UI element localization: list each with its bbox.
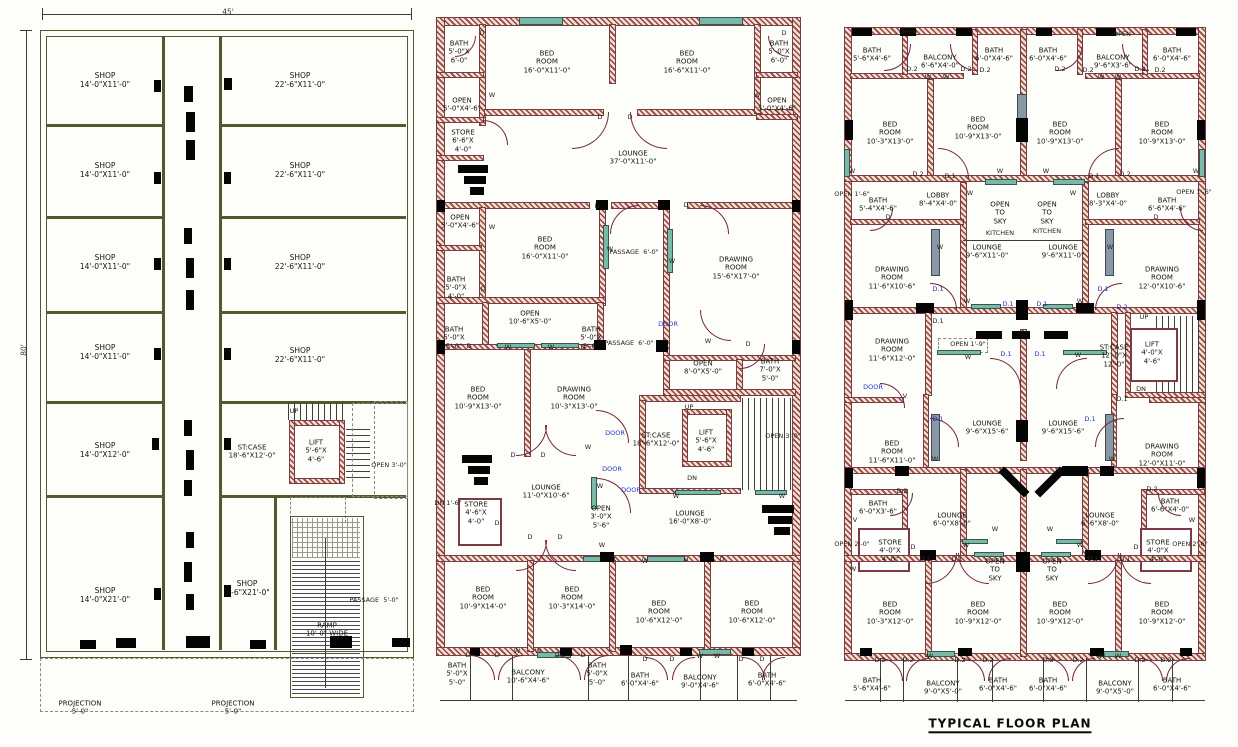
w-label: W <box>943 74 949 82</box>
d-label: D <box>781 30 786 38</box>
column <box>437 200 445 212</box>
bed-label: BED ROOM 10'-3"X13'-0" <box>867 120 914 145</box>
w-label: W <box>585 444 591 452</box>
window <box>972 305 1000 308</box>
column <box>1012 331 1030 339</box>
wall <box>222 216 406 219</box>
w-label: W <box>964 298 970 306</box>
bath-label: BATH 5'-0"X 6'-0" <box>768 39 789 64</box>
column <box>1062 466 1088 476</box>
column <box>462 455 492 463</box>
w-label: W <box>1115 653 1121 661</box>
column <box>1016 552 1030 572</box>
up-label: UP <box>685 404 694 412</box>
d-label: D <box>540 452 545 460</box>
door-arc <box>1056 358 1087 389</box>
d.2-label: D.2 <box>1042 657 1053 665</box>
column <box>184 562 192 582</box>
door-label: DOOR <box>863 384 883 392</box>
window <box>932 230 939 275</box>
door-label: DOOR <box>602 466 622 474</box>
shop-label: SHOP 14'-0"X11'-0" <box>80 253 130 271</box>
column <box>860 648 872 656</box>
d.2-label: D.2 <box>906 66 917 74</box>
dn-label: DN <box>687 475 697 483</box>
wall <box>928 80 933 178</box>
d-label: D <box>759 656 764 664</box>
column <box>774 527 790 535</box>
passage-6-0-label: PASSAGE 6'-0" <box>604 340 653 348</box>
bath-label: BATH 6'-0"X4'-6" <box>1029 47 1067 64</box>
shop-label: SHOP 14'-0"X21'-0" <box>80 586 130 604</box>
d.1-label: D.1 <box>1000 351 1011 359</box>
drawing-label: DRAWING ROOM 11'-6"X12'-0" <box>869 337 916 362</box>
balcony-label: BALCONY 10'-6"X4'-6" <box>507 669 549 686</box>
d-label: D <box>683 202 688 210</box>
passage-6-0-label: PASSAGE 6'-0" <box>609 249 658 257</box>
column <box>186 290 194 310</box>
projection-label: PROJECTION 5'-0" <box>211 700 254 717</box>
d.1-label: D.1 <box>1116 396 1127 404</box>
wall <box>640 396 740 401</box>
open-label: OPEN <box>899 29 917 37</box>
window <box>986 180 1016 184</box>
w-label: W <box>642 558 648 566</box>
door-arc <box>1095 418 1124 447</box>
column <box>1016 300 1028 320</box>
shop-label: SHOP 22'-6"X11'-0" <box>275 346 325 364</box>
d.2-label: D.2 <box>1054 66 1065 74</box>
bed-label: BED ROOM 10'-9"X14'-0" <box>460 585 507 610</box>
bed-label: BED ROOM 10'-9"X12'-0" <box>955 600 1002 625</box>
bath-label: BATH 6'-0"X3'-6" <box>859 500 897 517</box>
wall <box>483 303 488 345</box>
lift-label: LIFT 4'-0"X 4'-6" <box>1141 340 1162 365</box>
open-label: OPEN TO SKY <box>1037 200 1056 225</box>
floor-plan-drawing: 45'80'SHOP 14'-0"X11'-0"SHOP 22'-6"X11'-… <box>0 0 1238 747</box>
column <box>658 200 670 210</box>
column <box>186 636 210 648</box>
d.2-label: D.2 <box>960 66 971 74</box>
d-label: D <box>597 114 602 122</box>
w-label: W <box>1109 456 1115 464</box>
bed-label: BED ROOM 10'-6"X12'-0" <box>636 599 683 624</box>
wall <box>46 124 162 127</box>
window <box>648 557 684 561</box>
wall <box>1150 398 1205 402</box>
door-label: DOOR <box>621 487 641 495</box>
w-label: W <box>963 542 969 550</box>
column <box>224 258 231 270</box>
bath-label: BATH 5'-6"X4'-6" <box>853 47 891 64</box>
column <box>464 176 486 184</box>
column <box>845 300 853 320</box>
open-label: OPEN 8'-0"X5'-0" <box>684 360 722 377</box>
d.1-label: D.1 <box>1002 301 1013 309</box>
bath-label: BATH 5'-6"X4'-6" <box>853 677 891 694</box>
wall <box>290 421 344 425</box>
balcony-label: BALCONY 6'-6"X4'-0" <box>921 54 959 71</box>
bed-label: BED ROOM 10'-3"X14'-0" <box>549 585 596 610</box>
w-label: W <box>937 244 943 252</box>
open-label: OPEN <box>1113 31 1131 39</box>
d.2-label: D.2 <box>1146 486 1157 494</box>
w-label: W <box>992 526 998 534</box>
wall <box>664 390 795 395</box>
wall <box>727 410 731 466</box>
wall <box>757 115 797 119</box>
d-label: D <box>627 114 632 122</box>
bed-label: BED ROOM 16'-0"X11'-0" <box>522 235 569 260</box>
column <box>956 28 972 36</box>
wall <box>845 176 1205 181</box>
d.2-label: D.2 <box>912 171 923 179</box>
d.1-label: D.1 <box>1097 286 1108 294</box>
wall <box>705 561 710 651</box>
bath-label: BATH 6'-0"X4'-6" <box>1029 677 1067 694</box>
door-arc <box>545 540 576 571</box>
shop-label: SHOP 14'-0"X12'-0" <box>80 441 130 459</box>
column <box>224 78 232 90</box>
w-label: W <box>505 344 511 352</box>
shop-label: SHOP 22'-6"X11'-0" <box>275 253 325 271</box>
w-label: W <box>1043 168 1049 176</box>
d.1-label: D.1 <box>932 318 943 326</box>
line <box>411 8 412 20</box>
wall <box>222 124 406 127</box>
door-arc <box>572 112 609 149</box>
column <box>976 331 1002 339</box>
column <box>116 638 136 648</box>
d-label: D <box>1153 214 1158 222</box>
d.2-label: D.2 <box>896 488 907 496</box>
wall <box>222 311 406 314</box>
d-label: D <box>466 343 471 351</box>
d-label: D <box>594 203 599 211</box>
wall <box>437 118 483 122</box>
column <box>895 466 909 476</box>
d-label: D <box>479 30 484 38</box>
window <box>520 18 562 24</box>
column <box>1176 28 1196 36</box>
open-label: OPEN 10'-6"X5'-0" <box>509 310 551 327</box>
wall <box>683 462 731 466</box>
column <box>474 477 488 485</box>
wall <box>610 25 615 83</box>
bath-label: BATH 5'-0"X 4'-0" <box>445 275 466 300</box>
shop-label: SHOP 14'-0"X11'-0" <box>80 161 130 179</box>
drawing-label: DRAWING ROOM 15'-6"X17'-0" <box>713 255 760 280</box>
w-label: W <box>705 338 711 346</box>
column <box>186 594 194 610</box>
wall <box>162 36 165 650</box>
column <box>792 340 800 354</box>
column <box>186 450 194 470</box>
window <box>1106 230 1113 275</box>
store-label: STORE 4'-6"X 4'-0" <box>464 500 488 525</box>
open-3-0-label: OPEN 3'-0" <box>371 462 406 470</box>
dn-label: DN <box>1136 386 1146 394</box>
passage-5-0-label: PASSAGE 5'-0" <box>349 597 398 605</box>
w-label: W <box>779 493 785 501</box>
bath-label: BATH 6'-0"X4'-6" <box>748 672 786 689</box>
open-label: OPEN 5'-0"X4'-6" <box>441 214 479 231</box>
column <box>680 648 692 656</box>
bath-label: BATH 6'-0"X4'-6" <box>1153 47 1191 64</box>
open-label: OPEN 5'-0"X4'-6" <box>758 97 796 114</box>
lounge-label: LOUNGE 6'-6"X8'-0" <box>1081 512 1119 529</box>
column <box>186 532 194 548</box>
d.1-label: D.1 <box>1034 351 1045 359</box>
column <box>186 258 194 278</box>
lounge-label: LOUNGE 16'-0"X8'-0" <box>669 510 711 527</box>
st-case-label: ST:CASE 18'-6"X12'-0" <box>633 432 680 449</box>
w-label: W <box>548 344 554 352</box>
wall <box>340 421 344 483</box>
open-label: OPEN TO SKY <box>985 557 1004 582</box>
wall <box>437 246 481 250</box>
w-label: W <box>597 483 603 491</box>
bath-label: BATH 7'-0"X 5'-0" <box>759 357 780 382</box>
lounge-label: LOUNGE 6'-0"X8'-0" <box>933 512 971 529</box>
d-label: D <box>527 534 532 542</box>
drawing-label: DRAWING ROOM 12'-0"X10'-6" <box>1139 265 1186 290</box>
column <box>80 640 96 649</box>
ramp-label: RAMP 10'-0" WIDE <box>306 622 348 639</box>
column <box>184 86 193 102</box>
w-label: W <box>1189 517 1195 525</box>
door-arc <box>470 655 495 680</box>
line <box>20 659 32 660</box>
dn-1-6-label: DN 1'-6" <box>434 500 461 508</box>
drawing-label: DRAWING ROOM 12'-0"X11'-0" <box>1139 442 1186 467</box>
wall <box>757 73 797 77</box>
w-label: W <box>669 258 675 266</box>
column <box>768 516 792 524</box>
d.1-label: D.1 <box>951 556 962 564</box>
d.2-label: D.2 <box>1072 657 1083 665</box>
d-label: D <box>1133 544 1138 552</box>
open-label: OPEN TO SKY <box>990 200 1009 225</box>
projection-label: PROJECTION 5'-0" <box>58 700 101 717</box>
column <box>184 420 192 436</box>
wall <box>46 216 162 219</box>
bath-label: BATH 6'-6"X4'-6" <box>1148 197 1186 214</box>
w-label: W <box>1099 653 1105 661</box>
d-label: D <box>465 652 470 660</box>
d.1-label: D.1 <box>919 556 930 564</box>
st-case-label: ST:CASE 18'-6"X12'-0" <box>229 444 276 461</box>
column <box>154 80 161 92</box>
window <box>498 344 534 347</box>
d.2-label: D.2 <box>1119 171 1130 179</box>
w-label: W <box>932 456 938 464</box>
line <box>963 240 1083 241</box>
shop-label: SHOP 22'-6"X11'-0" <box>275 71 325 89</box>
store-label: STORE 6'-6"X 4'-0" <box>451 128 475 153</box>
balcony-label: BALCONY 9'-0"X4'-6" <box>681 674 719 691</box>
w-label: W <box>967 190 973 198</box>
balcony-label: BALCONY 9'-0"X5'-0" <box>1096 680 1134 697</box>
bath-label: BATH 5'-0"X 5'-0" <box>443 325 464 350</box>
door-arc <box>483 120 508 145</box>
w-label: W <box>1193 168 1199 176</box>
d.2-label: D.2 <box>1160 657 1171 665</box>
w-label: W <box>535 648 541 656</box>
drawing-label: DRAWING ROOM 11'-6"X10'-6" <box>869 265 916 290</box>
door-arc <box>990 358 1021 389</box>
wall <box>1116 561 1121 656</box>
window <box>1200 150 1204 176</box>
d.2-label: D.2 <box>874 657 885 665</box>
wall <box>46 495 162 498</box>
d-label: D <box>683 556 688 564</box>
column <box>1044 331 1068 339</box>
d-label: D <box>642 656 647 664</box>
d.1-label: D.1 <box>1088 173 1099 181</box>
w-label: W <box>1075 352 1081 360</box>
w-label: W <box>965 354 971 362</box>
d-label: D <box>510 452 515 460</box>
column <box>224 348 231 360</box>
shop-label: SHOP 14'-0"X11'-0" <box>80 343 130 361</box>
column <box>152 438 159 450</box>
wall <box>290 421 294 483</box>
bath-label: BATH 5'-0"X 6'-0" <box>448 39 469 64</box>
column <box>845 120 853 140</box>
d.1-label: D.1 <box>1087 556 1098 564</box>
w-label: W <box>997 168 1003 176</box>
bed-label: BED ROOM 16'-0"X11'-0" <box>524 49 571 74</box>
w-label: W <box>1077 542 1083 550</box>
door-label: DOOR <box>605 430 625 438</box>
d-label: D <box>885 214 890 222</box>
v-label: V <box>903 393 907 401</box>
column <box>1100 466 1114 476</box>
bath-label: BATH 5'-0"X 5'-0" <box>446 661 467 686</box>
d.1-label: D.1 <box>932 286 943 294</box>
line <box>42 8 43 20</box>
wall <box>290 479 344 483</box>
d.2-label: D.2 <box>1134 657 1145 665</box>
lounge-label: LOUNGE 9'-6"X11'-0" <box>966 244 1008 261</box>
column <box>845 468 853 488</box>
d-label: D <box>738 656 743 664</box>
wall <box>683 410 687 466</box>
column <box>468 466 490 474</box>
open-2-6-label: OPEN 2'-6" <box>1172 541 1207 549</box>
shop-label: SHOP 14'-0"X11'-0" <box>80 71 130 89</box>
w-label: W <box>697 653 703 661</box>
wall <box>528 561 533 651</box>
lounge-label: LOUNGE 9'-6"X15'-6" <box>966 420 1008 437</box>
st-case-label: ST:CASE 12'-0"X 12'-0" <box>1100 343 1129 368</box>
column <box>656 340 668 352</box>
dashed-open-line <box>374 401 408 499</box>
door-arc <box>630 112 667 149</box>
column <box>958 648 972 656</box>
45-label: 45' <box>222 8 234 17</box>
column <box>1036 28 1052 36</box>
column <box>742 648 754 656</box>
wall <box>851 220 963 224</box>
w-label: W <box>489 224 495 232</box>
wall <box>437 73 483 77</box>
bed-label: BED ROOM 16'-6"X11'-0" <box>664 49 711 74</box>
drawing-label: DRAWING ROOM 10'-3"X13'-0" <box>551 385 598 410</box>
wall <box>437 156 483 160</box>
column <box>792 200 800 212</box>
d-label: D <box>745 341 750 349</box>
bath-label: BATH 5'-0"X 5'-0" <box>586 661 607 686</box>
column <box>184 480 192 496</box>
d.2-label: D.2 <box>1134 66 1145 74</box>
open-label: OPEN TO SKY <box>1042 557 1061 582</box>
d-label: D <box>580 344 585 352</box>
window <box>676 491 720 494</box>
d.1-label: D.1 <box>1084 416 1095 424</box>
window <box>1042 553 1070 556</box>
w-label: W <box>1107 244 1113 252</box>
store-label: STORE 4'-0"X 4'-0" <box>878 538 902 563</box>
bed-label: BED ROOM 10'-6"X12'-0" <box>729 599 776 624</box>
kitchen-label: KITCHEN <box>986 230 1014 238</box>
wall <box>46 401 162 404</box>
balcony-label: BALCONY 9'-0"X5'-0" <box>924 680 962 697</box>
door-arc <box>556 655 581 680</box>
window <box>1054 180 1084 184</box>
open-1-6-label: OPEN 1'-6" <box>1176 189 1211 197</box>
up-label: UP <box>1140 314 1149 322</box>
w-label: W <box>850 566 856 574</box>
wall <box>1086 220 1199 224</box>
door-arc <box>596 410 629 443</box>
wall <box>274 497 277 650</box>
column <box>600 552 614 562</box>
lounge-label: LOUNGE 37'-0"X11'-0" <box>610 150 657 167</box>
open-2-0-label: OPEN 2'-0" <box>834 541 869 549</box>
d.2-label: D.2 <box>982 657 993 665</box>
shop-label: SHOP 22'-6"X11'-0" <box>275 161 325 179</box>
column <box>250 640 266 649</box>
bath-label: BATH 5'-4"X4'-6" <box>859 197 897 214</box>
bed-label: BED ROOM 10'-9"X12'-0" <box>1037 600 1084 625</box>
column <box>762 505 794 513</box>
bed-label: BED ROOM 10'-9"X13'-0" <box>455 385 502 410</box>
d-label: D <box>494 520 499 528</box>
column <box>458 165 488 173</box>
d-label: D <box>669 656 674 664</box>
d.1-label: D.1 <box>944 173 955 181</box>
open-label: OPEN 3'-0"X 5'-6" <box>590 504 611 529</box>
column <box>700 552 714 562</box>
column <box>186 140 195 160</box>
column <box>620 645 632 655</box>
door-arc <box>880 383 905 408</box>
w-label: W <box>714 653 720 661</box>
w-label: W <box>514 648 520 656</box>
w-label: W <box>1077 298 1083 306</box>
open-1-9-label: OPEN 1'-9" <box>950 341 985 349</box>
wall <box>924 395 928 470</box>
drawing-title: TYPICAL FLOOR PLAN <box>928 716 1091 733</box>
w-label: W <box>1098 74 1104 82</box>
column <box>184 228 192 244</box>
w-label: W <box>1070 190 1076 198</box>
store-label: STORE 4'-0"X 4'-0" <box>1146 538 1170 563</box>
door-arc <box>610 205 639 234</box>
up-label: UP <box>290 408 299 416</box>
